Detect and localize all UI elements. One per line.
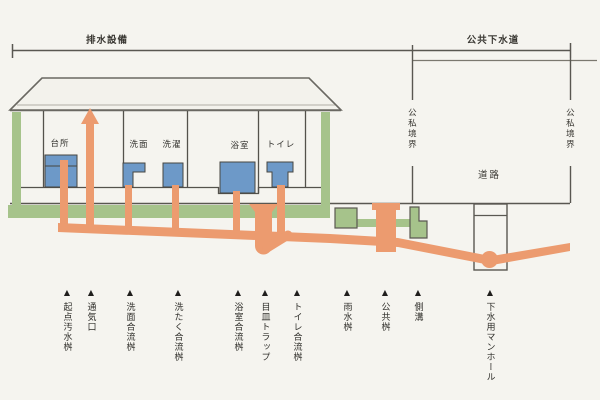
legend-item-label: トイレ合流桝 bbox=[291, 302, 304, 362]
house-roof bbox=[10, 78, 341, 111]
bathtub-drain-pipe bbox=[233, 191, 240, 233]
triangle-marker-icon: ▲ bbox=[382, 289, 388, 297]
triangle-marker-icon: ▲ bbox=[415, 289, 421, 297]
triangle-marker-icon: ▲ bbox=[294, 289, 300, 297]
toilet-drain-pipe bbox=[277, 185, 285, 235]
legend-item-public-basin: ▲ 公共桝 bbox=[375, 289, 395, 332]
triangle-marker-icon: ▲ bbox=[487, 289, 493, 297]
label-public-sewer: 公共下水道 bbox=[458, 36, 528, 46]
legend-item-rain-basin: ▲ 雨水桝 bbox=[337, 289, 357, 332]
vent-pipe bbox=[86, 122, 94, 227]
legend-item-label: 雨水桝 bbox=[341, 302, 354, 332]
legend-item-label: 浴室合流桝 bbox=[232, 302, 245, 352]
legend-item-bath-junction: ▲ 浴室合流桝 bbox=[228, 289, 248, 352]
triangle-marker-icon: ▲ bbox=[175, 289, 181, 297]
washbasin bbox=[123, 163, 145, 187]
legend-item-trap: ▲ 目皿トラップ bbox=[255, 289, 275, 362]
label-boundary-right: 公私境界 bbox=[564, 108, 573, 150]
toilet bbox=[267, 162, 293, 187]
house-right-wall bbox=[321, 112, 330, 213]
legend-item-label: 起点汚水桝 bbox=[61, 302, 74, 352]
house-left-wall bbox=[12, 112, 21, 218]
bathtub bbox=[220, 162, 255, 193]
legend-item-label: 洗面合流桝 bbox=[124, 302, 137, 352]
washing-machine bbox=[163, 163, 183, 187]
label-boundary-left: 公私境界 bbox=[406, 108, 415, 150]
label-drainage-facility: 排水設備 bbox=[77, 36, 137, 46]
legend-item-toilet-junction: ▲ トイレ合流桝 bbox=[287, 289, 307, 362]
laundry-drain-pipe bbox=[172, 185, 179, 231]
triangle-marker-icon: ▲ bbox=[127, 289, 133, 297]
washbasin-drain-pipe bbox=[125, 185, 132, 230]
legend-item-label: 下水用マンホール bbox=[484, 302, 497, 382]
legend-item-laundry-junction: ▲ 洗たく合流桝 bbox=[168, 289, 188, 362]
drainage-diagram: 排水設備 公共下水道 公私境界 公私境界 道路 台所 洗面 洗濯 浴室 トイレ … bbox=[0, 0, 600, 400]
label-road: 道路 bbox=[478, 171, 501, 181]
public-basin bbox=[372, 203, 400, 252]
legend-item-washbasin-junction: ▲ 洗面合流桝 bbox=[120, 289, 140, 352]
triangle-marker-icon: ▲ bbox=[64, 289, 70, 297]
rainwater-basin bbox=[335, 208, 357, 228]
label-bathroom: 浴室 bbox=[220, 142, 260, 151]
label-kitchen: 台所 bbox=[40, 140, 80, 149]
label-laundry: 洗濯 bbox=[152, 141, 192, 150]
legend-item-vent: ▲ 通気口 bbox=[81, 289, 101, 332]
legend-item-label: 側溝 bbox=[412, 302, 425, 322]
legend-item-label: 公共桝 bbox=[379, 302, 392, 332]
side-gutter bbox=[410, 207, 427, 238]
triangle-marker-icon: ▲ bbox=[262, 289, 268, 297]
legend-item-manhole: ▲ 下水用マンホール bbox=[480, 289, 500, 382]
legend-item-label: 通気口 bbox=[85, 302, 98, 332]
legend-item-label: 洗たく合流桝 bbox=[172, 302, 185, 362]
legend-item-gutter: ▲ 側溝 bbox=[408, 289, 428, 322]
triangle-marker-icon: ▲ bbox=[344, 289, 350, 297]
legend-item-start-basin: ▲ 起点汚水桝 bbox=[57, 289, 77, 352]
label-toilet: トイレ bbox=[261, 141, 301, 150]
triangle-marker-icon: ▲ bbox=[88, 289, 94, 297]
triangle-marker-icon: ▲ bbox=[235, 289, 241, 297]
legend-item-label: 目皿トラップ bbox=[259, 302, 272, 362]
kitchen-drain-pipe bbox=[60, 160, 68, 228]
